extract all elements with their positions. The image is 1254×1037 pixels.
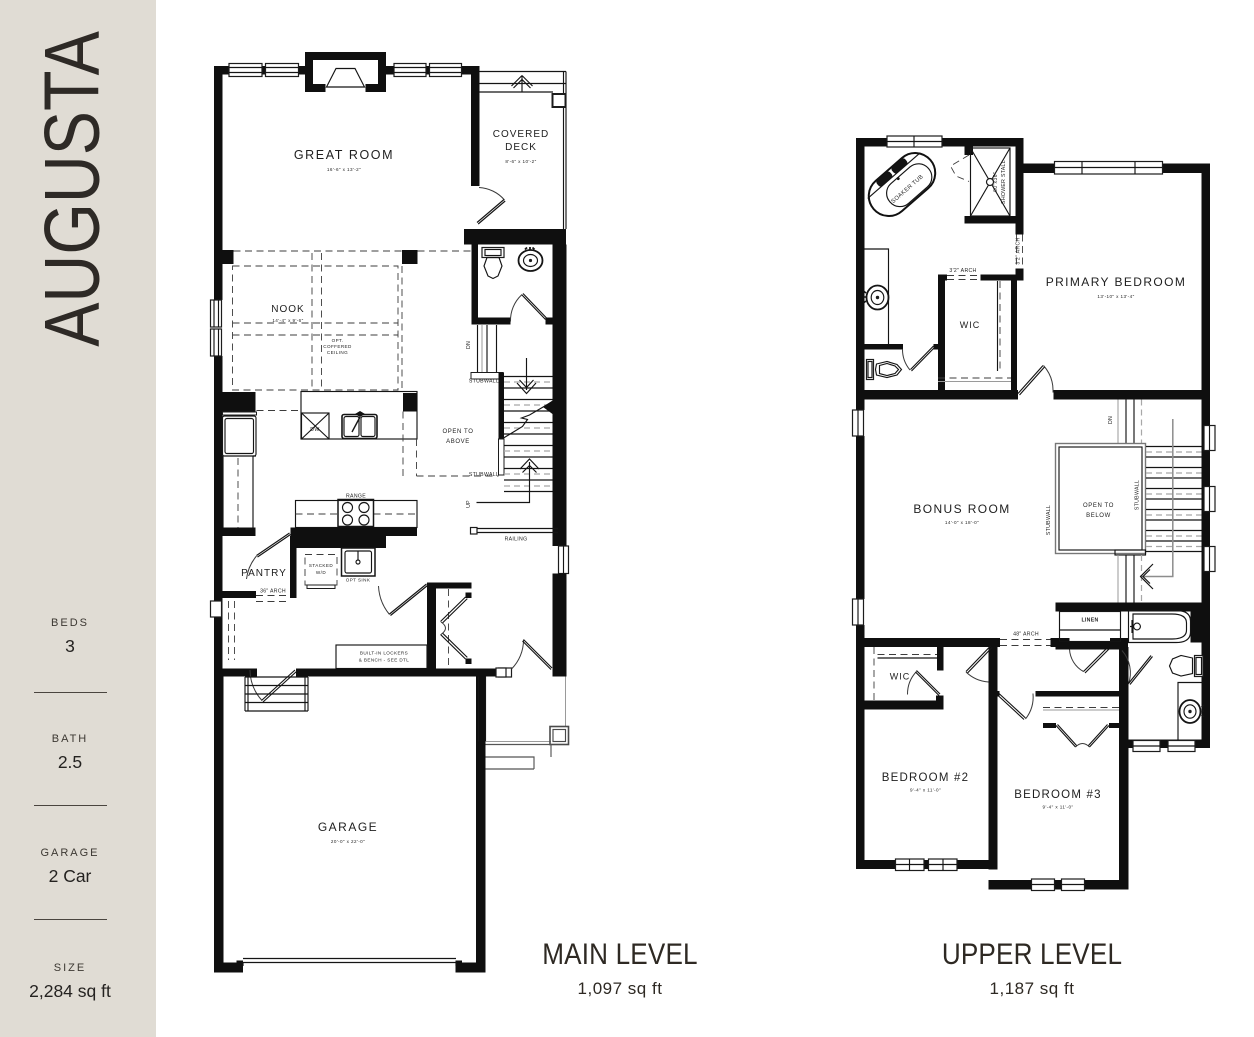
svg-text:COFFERED: COFFERED — [323, 344, 352, 349]
svg-text:13'-10" x 13'-4": 13'-10" x 13'-4" — [1097, 294, 1134, 299]
svg-text:60"x36": 60"x36" — [993, 172, 999, 192]
svg-text:9'-4" x 11'-0": 9'-4" x 11'-0" — [1043, 805, 1074, 810]
svg-text:16'-6" x 13'-2": 16'-6" x 13'-2" — [327, 167, 361, 172]
svg-text:CEILING: CEILING — [327, 350, 348, 355]
svg-text:COVERED: COVERED — [493, 129, 549, 140]
svg-text:OPT.: OPT. — [332, 338, 344, 343]
svg-text:ABOVE: ABOVE — [446, 439, 470, 445]
svg-text:STUBWALL: STUBWALL — [1135, 480, 1141, 510]
svg-text:DECK: DECK — [505, 142, 537, 153]
svg-text:DN: DN — [466, 341, 472, 349]
svg-text:& BENCH - SEE DTL: & BENCH - SEE DTL — [359, 658, 409, 663]
svg-text:3'2" ARCH: 3'2" ARCH — [949, 268, 976, 274]
svg-text:DN: DN — [1108, 416, 1114, 424]
svg-text:PRIMARY BEDROOM: PRIMARY BEDROOM — [1046, 275, 1187, 289]
svg-text:BUILT-IN LOCKERS: BUILT-IN LOCKERS — [360, 651, 408, 656]
svg-text:GARAGE: GARAGE — [318, 820, 378, 834]
svg-text:STACKED: STACKED — [309, 563, 333, 568]
svg-text:RAILING: RAILING — [505, 537, 528, 543]
svg-text:SHOWER STALL: SHOWER STALL — [1001, 160, 1007, 204]
svg-text:BELOW: BELOW — [1086, 513, 1111, 519]
svg-text:BEDROOM #2: BEDROOM #2 — [882, 772, 969, 784]
svg-text:STUBWALL: STUBWALL — [469, 472, 499, 478]
svg-text:PANTRY: PANTRY — [241, 568, 287, 579]
svg-text:48" ARCH: 48" ARCH — [1013, 632, 1039, 638]
svg-text:UP: UP — [466, 500, 472, 508]
svg-text:14'-0" x 18'-0": 14'-0" x 18'-0" — [945, 520, 979, 525]
svg-text:3'2" ARCH: 3'2" ARCH — [1016, 237, 1022, 264]
svg-text:LINEN: LINEN — [1081, 618, 1098, 624]
svg-text:BONUS ROOM: BONUS ROOM — [913, 502, 1010, 516]
svg-text:WIC: WIC — [960, 320, 981, 330]
svg-text:36" ARCH: 36" ARCH — [260, 589, 286, 595]
svg-text:DW: DW — [310, 427, 319, 433]
svg-text:OPEN TO: OPEN TO — [443, 429, 474, 435]
svg-text:STUBWALL: STUBWALL — [469, 379, 499, 385]
svg-text:20'-0" x 22'-0": 20'-0" x 22'-0" — [331, 839, 365, 844]
svg-text:WIC: WIC — [890, 672, 911, 682]
svg-text:14'-4" x 9'-6": 14'-4" x 9'-6" — [272, 318, 303, 323]
svg-text:9'-4" x 11'-0": 9'-4" x 11'-0" — [910, 788, 941, 793]
svg-text:8'-6" x 10'-2": 8'-6" x 10'-2" — [505, 159, 536, 164]
svg-text:OPT SINK: OPT SINK — [346, 578, 371, 583]
svg-text:OPEN TO: OPEN TO — [1083, 503, 1114, 509]
svg-text:BEDROOM #3: BEDROOM #3 — [1014, 789, 1101, 801]
svg-text:GREAT ROOM: GREAT ROOM — [294, 148, 394, 162]
svg-text:NOOK: NOOK — [271, 304, 304, 315]
svg-text:W/D: W/D — [316, 570, 326, 575]
svg-text:RANGE: RANGE — [346, 494, 366, 500]
svg-text:STUBWALL: STUBWALL — [1046, 505, 1052, 535]
